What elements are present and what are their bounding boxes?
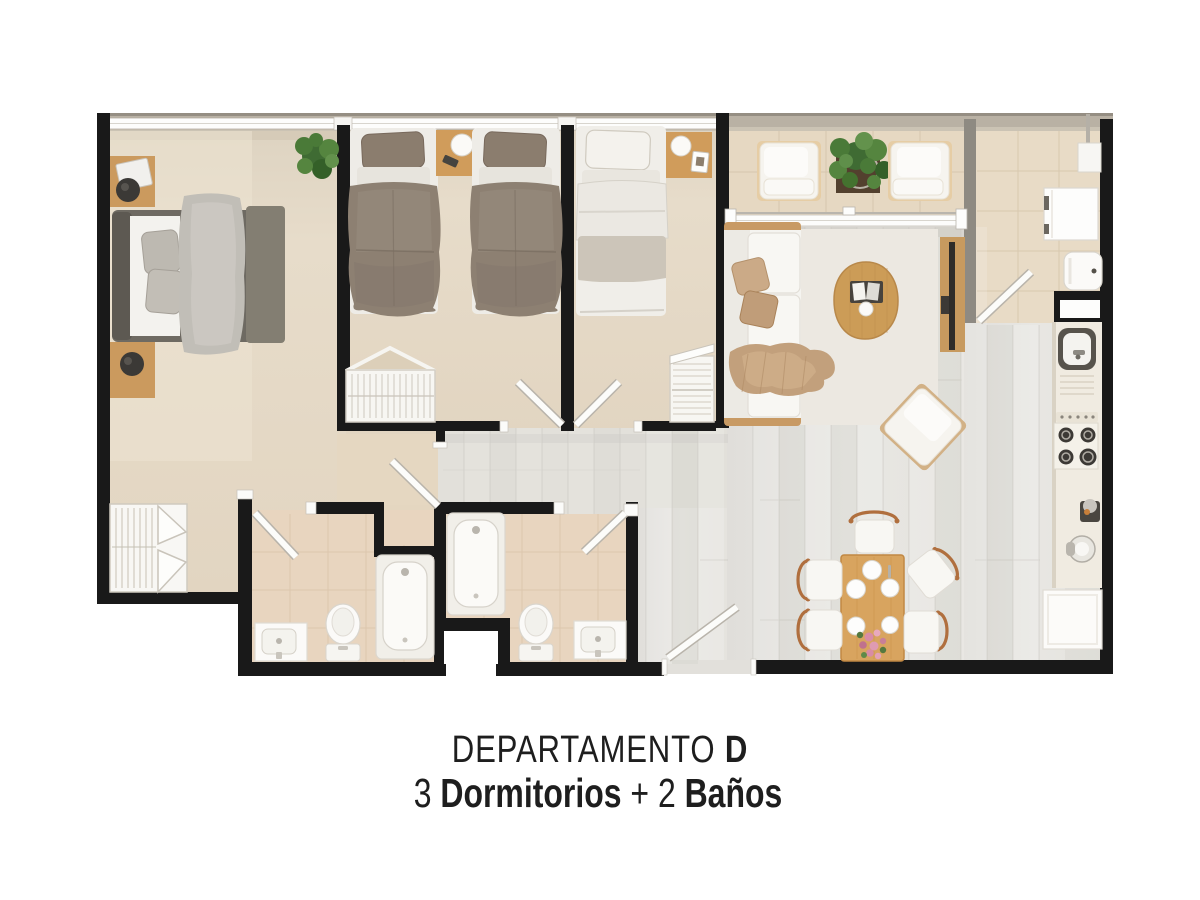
- svg-text:DEPARTAMENTO D: DEPARTAMENTO D: [452, 729, 748, 771]
- svg-text:3 Dormitorios + 2 Baños: 3 Dormitorios + 2 Baños: [414, 770, 783, 816]
